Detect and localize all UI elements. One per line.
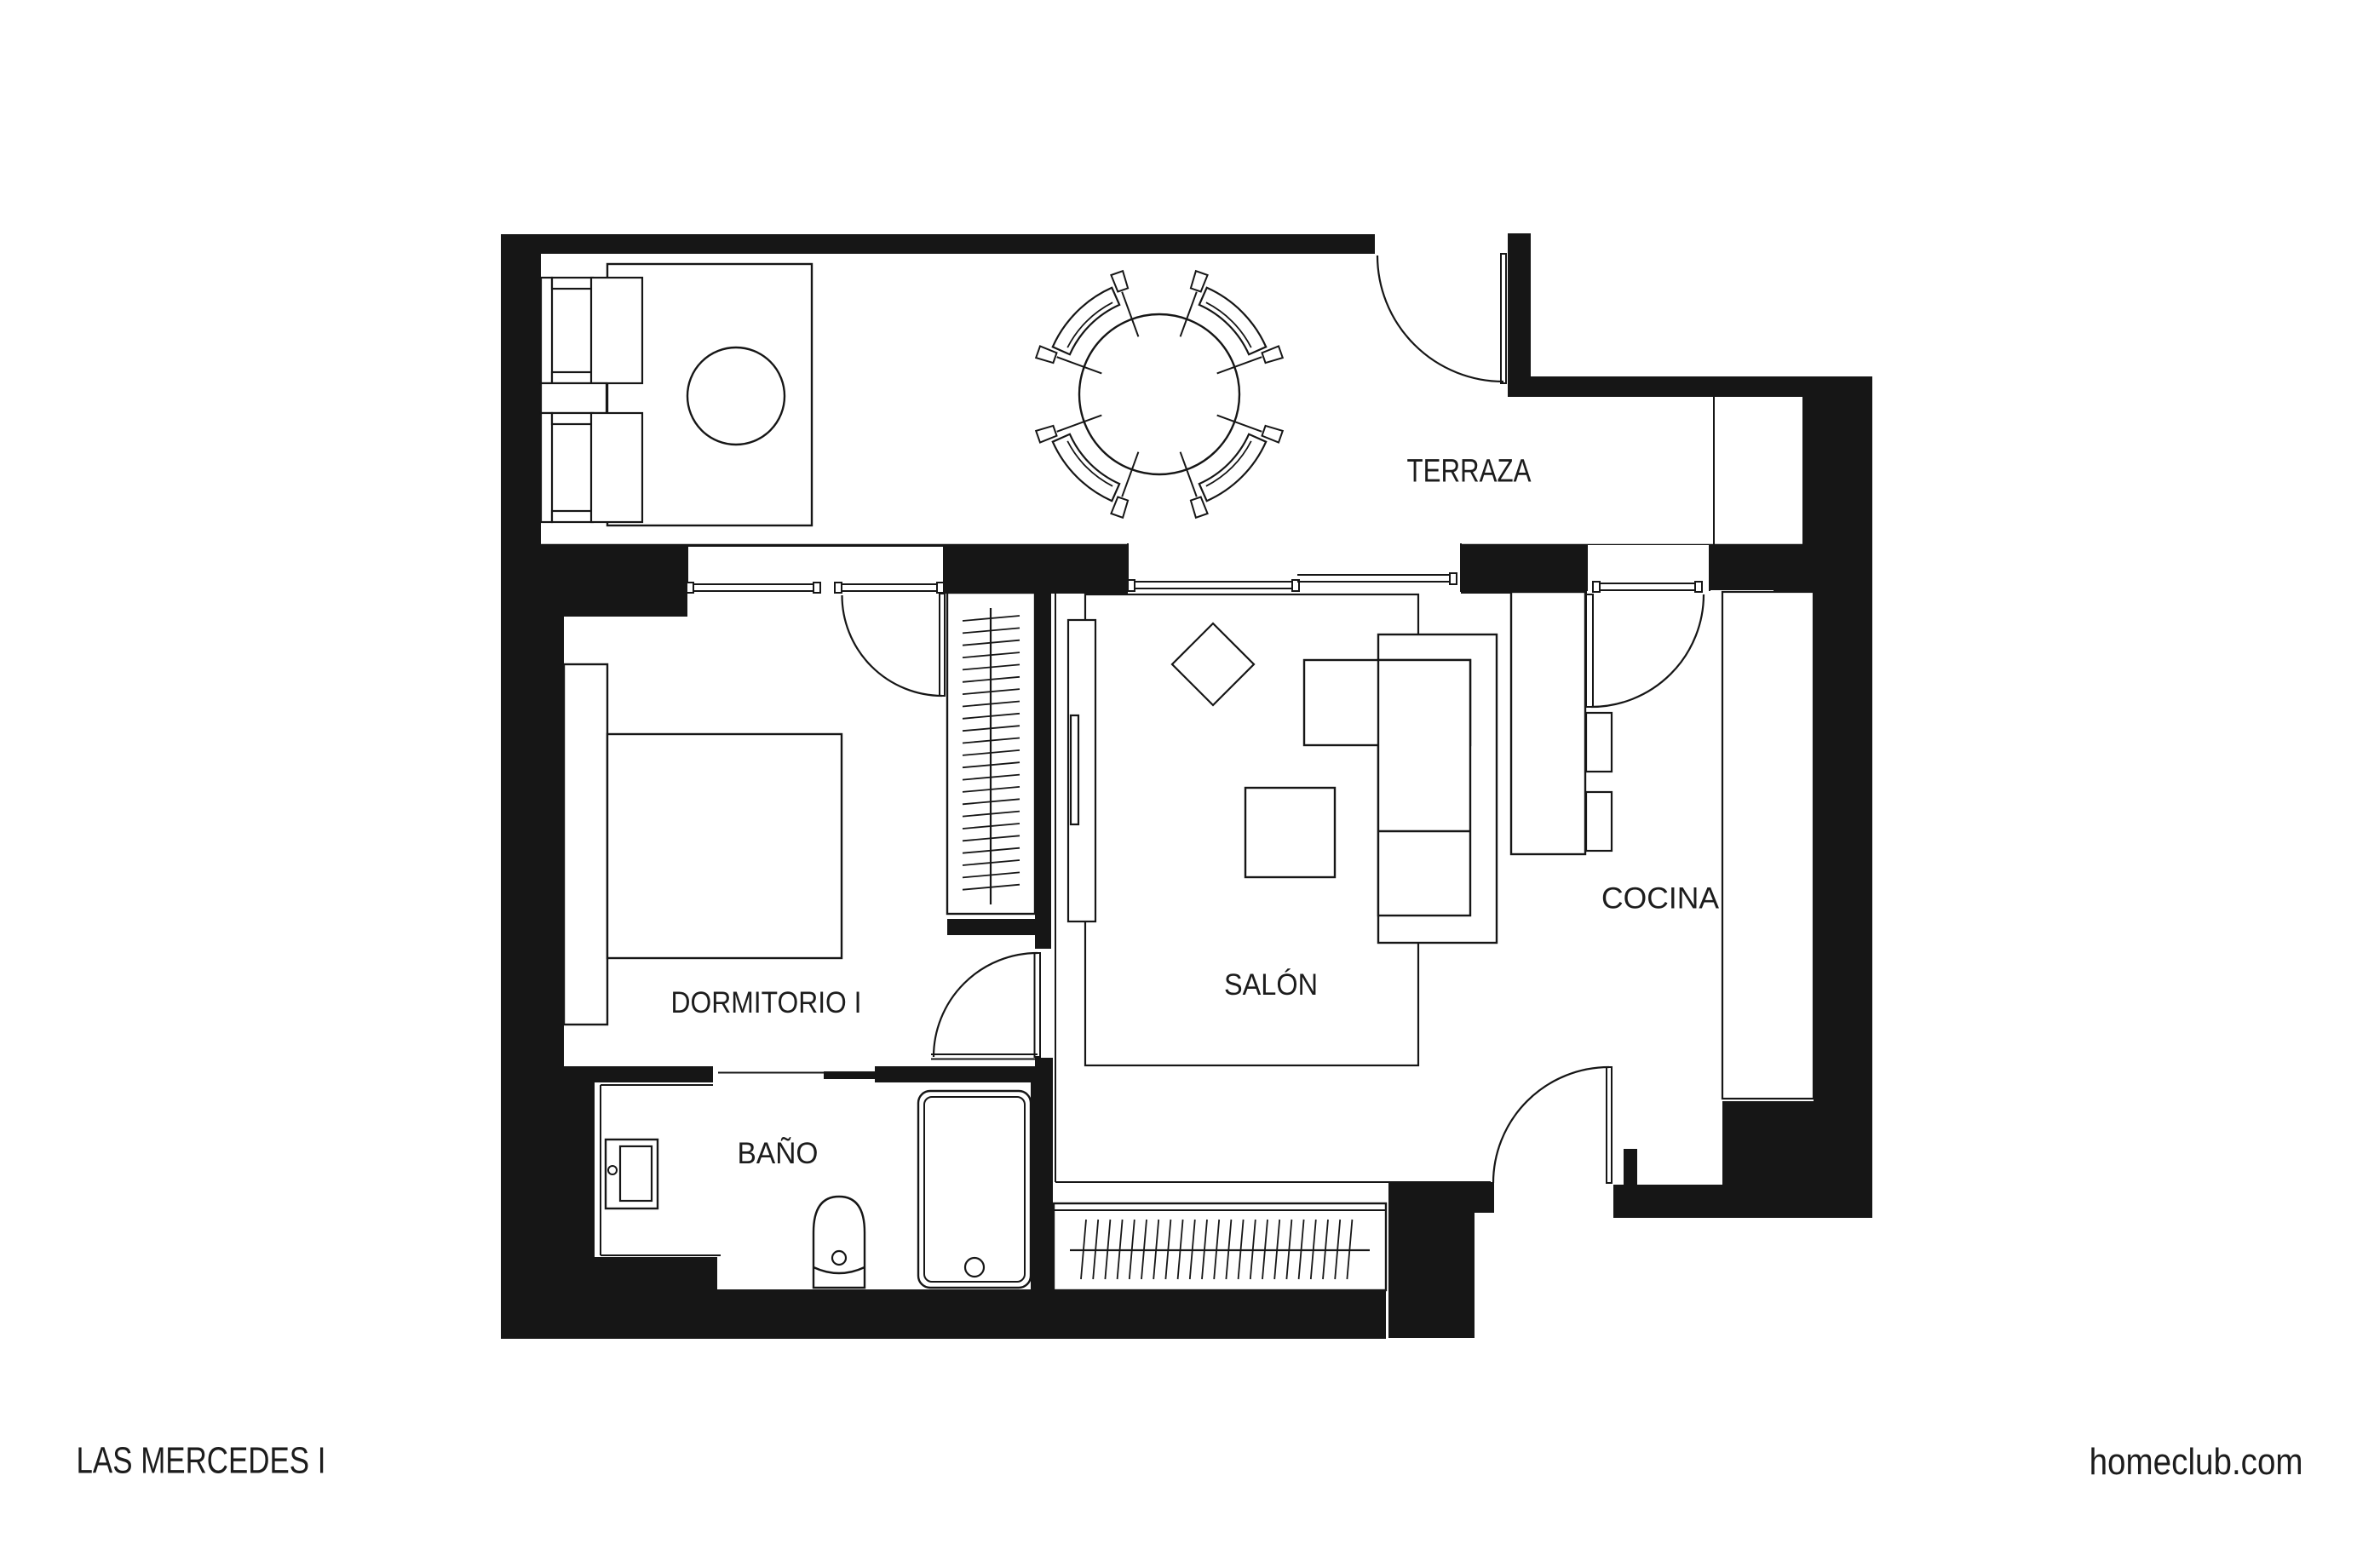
svg-text:DORMITORIO I: DORMITORIO I	[671, 986, 862, 1019]
svg-text:TERRAZA: TERRAZA	[1407, 454, 1532, 490]
svg-text:LAS MERCEDES I: LAS MERCEDES I	[77, 1440, 326, 1482]
svg-text:homeclub.com: homeclub.com	[2090, 1441, 2303, 1483]
svg-text:SALÓN: SALÓN	[1224, 968, 1318, 1002]
svg-text:BAÑO: BAÑO	[738, 1137, 819, 1170]
svg-text:COCINA: COCINA	[1601, 882, 1720, 916]
